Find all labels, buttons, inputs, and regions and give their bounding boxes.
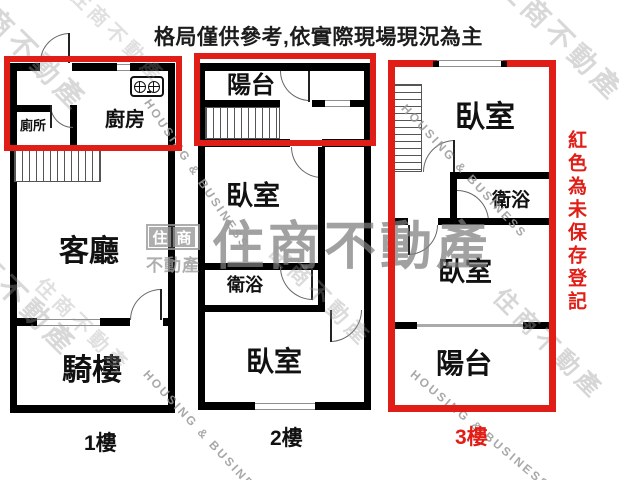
brand-logo-watermark: 住 商 不動產: [146, 224, 200, 276]
floorplan-image: 廁所 廚房 客廳 騎樓 陽台 臥室 衛浴 臥室: [0, 0, 619, 480]
stairs-floor1: [14, 150, 101, 182]
side-note-unregistered: 紅色為未保存登記: [566, 130, 585, 314]
wall-segment: [100, 318, 130, 326]
brand-logo-subtext: 不動產: [146, 251, 200, 276]
disclaimer-text: 格局僅供參考,依實際現場現況為主: [154, 27, 483, 48]
door-arc: [130, 289, 161, 320]
wall-segment: [315, 402, 371, 410]
room-label-bedroom: 臥室: [226, 183, 280, 210]
room-label-bath: 衛浴: [227, 276, 263, 294]
brand-logo-char: 住: [149, 227, 171, 247]
window-end-cap: [501, 61, 507, 67]
floor-label-1f: 1樓: [84, 433, 117, 454]
unregistered-area-outline-floor1: [4, 56, 182, 151]
wall-segment: [205, 305, 325, 312]
wall-segment: [198, 402, 255, 410]
brand-logo-char: 商: [173, 227, 195, 247]
floor-label-2f: 2樓: [270, 428, 303, 449]
wall-segment: [163, 318, 175, 326]
room-label-bedroom: 臥室: [246, 348, 302, 376]
window: [437, 60, 503, 67]
window: [255, 403, 315, 410]
room-label-living: 客廳: [59, 237, 119, 267]
floor-label-3f: 3樓: [455, 427, 488, 448]
unregistered-area-outline-floor3: [388, 60, 556, 412]
brand-en-watermark: HOUSING & BUSINESS: [141, 368, 271, 480]
wall-segment: [10, 405, 175, 413]
brand-logo-box: 住 商: [146, 224, 200, 250]
door-leaf: [160, 289, 162, 320]
window-end-cap: [433, 61, 439, 67]
unregistered-area-outline-floor2: [194, 53, 376, 146]
